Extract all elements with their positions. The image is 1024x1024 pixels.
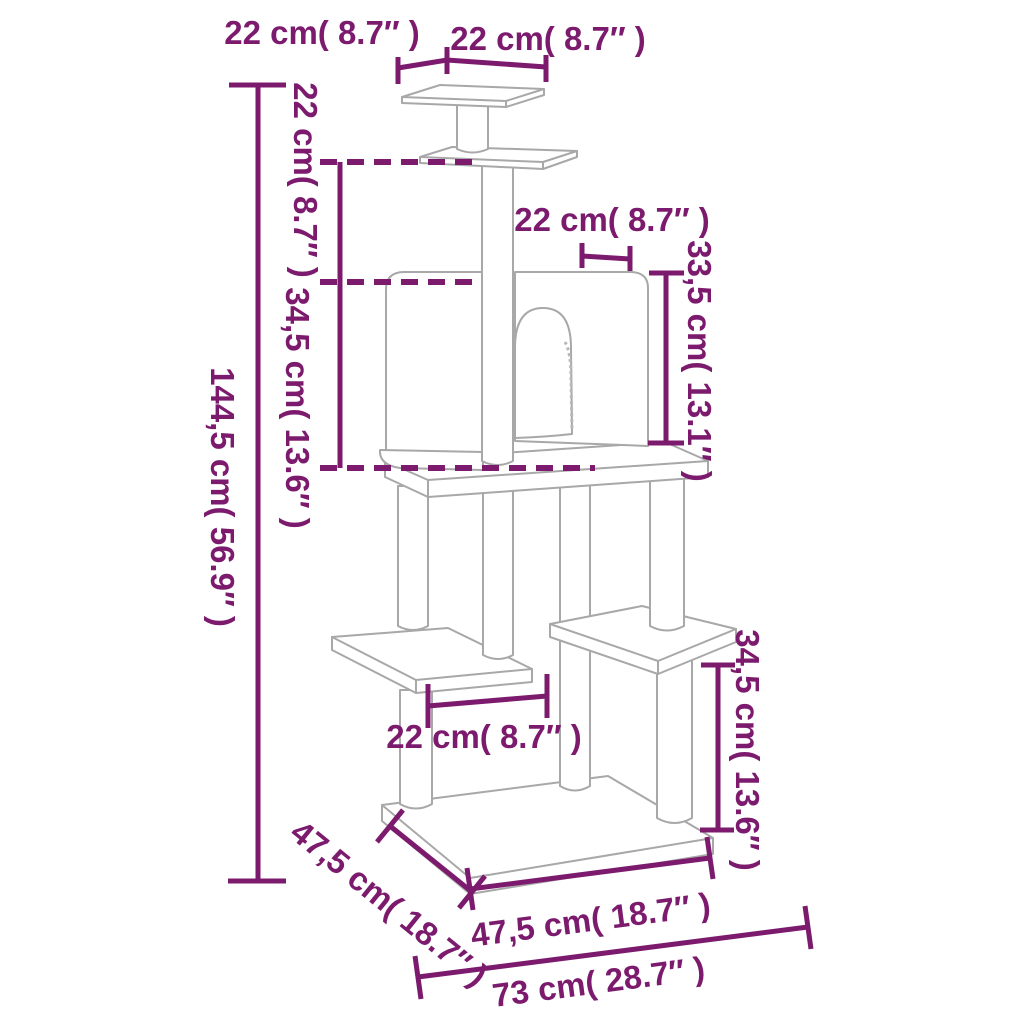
scratching-post xyxy=(650,474,684,631)
dim-label-mid-height: 34,5 cm( 13.6″ ) xyxy=(279,287,316,528)
dimension-diagram: 22 cm( 8.7″ ) 22 cm( 8.7″ ) 22 cm( 8.7″ … xyxy=(0,0,1024,1024)
scratching-post xyxy=(483,486,513,659)
dim-tick xyxy=(415,956,421,999)
dim-tick xyxy=(805,906,811,949)
dim-label-upper-height: 22 cm( 8.7″ ) xyxy=(287,82,324,278)
dim-line-top-platform xyxy=(398,60,546,68)
dim-label-overall-width: 73 cm( 28.7″ ) xyxy=(490,949,707,1014)
dim-label-condo-height: 33,5 cm( 13.1″ ) xyxy=(681,240,718,481)
condo-side-panel xyxy=(386,272,483,459)
dim-label-top-depth: 22 cm( 8.7″ ) xyxy=(224,14,420,51)
scratching-post xyxy=(657,660,692,823)
dim-label-condo-depth: 22 cm( 8.7″ ) xyxy=(514,201,710,238)
diagram-canvas: 22 cm( 8.7″ ) 22 cm( 8.7″ ) 22 cm( 8.7″ … xyxy=(0,0,1024,1024)
dim-label-total-height: 144,5 cm( 56.9″ ) xyxy=(204,367,241,627)
condo-door-arch xyxy=(515,308,572,438)
dim-line-condo-depth xyxy=(582,256,630,259)
scratching-post xyxy=(398,486,428,630)
center-scratching-post xyxy=(482,162,513,465)
dim-label-top-width: 22 cm( 8.7″ ) xyxy=(450,20,646,57)
dim-label-right-height: 34,5 cm( 13.6″ ) xyxy=(729,629,766,870)
dim-line-step-width xyxy=(428,696,547,706)
dim-label-step-width: 22 cm( 8.7″ ) xyxy=(386,718,582,755)
